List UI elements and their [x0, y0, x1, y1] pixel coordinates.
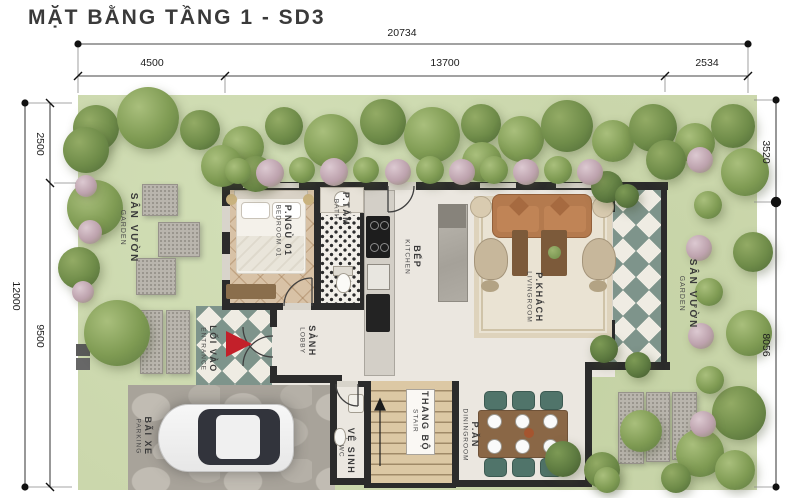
tree [625, 352, 651, 378]
label-dining: P.ĂNDININGROOM [460, 409, 480, 462]
page-title: MẶT BẰNG TẦNG 1 - SD3 [28, 6, 326, 30]
tree [180, 110, 220, 150]
tree [590, 335, 618, 363]
wc-sink [348, 394, 364, 413]
dining-chair [484, 458, 507, 477]
tree [715, 450, 755, 490]
stepping-stone [166, 310, 190, 374]
bedroom-side-window [222, 254, 230, 280]
flower-shrub [78, 220, 102, 244]
burner [370, 221, 379, 230]
dim-top-seg-3: 2534 [695, 57, 718, 69]
plate [543, 414, 558, 429]
bedside-lamp [303, 194, 314, 205]
armchair [582, 238, 616, 280]
tree [696, 366, 724, 394]
tree [615, 184, 639, 208]
car-roof [216, 415, 260, 459]
tree [117, 87, 179, 149]
flower-shrub [385, 159, 411, 185]
plate [515, 414, 530, 429]
dining-chair [540, 391, 563, 410]
flower-shrub [75, 175, 97, 197]
dining-chair [512, 458, 535, 477]
label-kitchen: BẾPKITCHEN [402, 239, 422, 275]
tree [712, 386, 766, 440]
stepping-stone [136, 258, 176, 295]
tree [545, 441, 581, 477]
label-wc: VỆ SINHWC [336, 428, 356, 475]
wall-bath-bottom [314, 303, 367, 310]
label-bedroom: P.NGỦ 01BEDROOM 01 [273, 205, 293, 258]
stepping-stone [142, 184, 178, 216]
wall-terrace-right [661, 182, 667, 370]
flower-shrub [449, 159, 475, 185]
flower-shrub [686, 235, 712, 261]
flower-shrub [256, 159, 284, 187]
tree [592, 120, 634, 162]
label-garden-right: SÂN VƯỜNGARDEN [677, 259, 699, 330]
tree [360, 99, 406, 145]
label-living: P.KHÁCHLIVINGROOM [524, 271, 544, 323]
toilet-bowl [336, 273, 351, 293]
dim-right-seg-2: 8056 [760, 333, 772, 356]
dining-chair [484, 391, 507, 410]
flower-shrub [690, 411, 716, 437]
dining-chair [512, 391, 535, 410]
island-top [438, 204, 466, 228]
label-garden-left: SÂN VƯỜNGARDEN [118, 193, 140, 264]
tree [63, 127, 109, 173]
bedroom-side-window [222, 206, 230, 232]
tree [289, 157, 315, 183]
burner [380, 221, 389, 230]
floor-terrace [610, 186, 664, 364]
bedside-lamp [226, 194, 237, 205]
utility-box [76, 358, 90, 370]
wall-wc-stair [364, 381, 371, 485]
blanket [237, 236, 304, 271]
flower-shrub [320, 158, 348, 186]
tree [416, 156, 444, 184]
tree [711, 104, 755, 148]
pillow [241, 202, 270, 219]
side-table [470, 196, 492, 218]
pouf [481, 280, 499, 292]
tree [695, 278, 723, 306]
tree [541, 100, 593, 152]
floor-lobby [270, 302, 365, 385]
tree [225, 158, 251, 184]
tree [480, 156, 508, 184]
tree [498, 116, 544, 162]
floor-plan-canvas: MẶT BẰNG TẦNG 1 - SD3 [0, 0, 800, 498]
tree [461, 104, 501, 144]
label-entrance: LỐI VÀOENTRANCE [198, 325, 218, 373]
bedroom-door-opening [283, 303, 311, 310]
dim-left-seg-1: 2500 [34, 132, 46, 155]
tree [265, 107, 303, 145]
wc-door-opening [337, 381, 358, 387]
plate [487, 414, 502, 429]
coffee-table [512, 230, 528, 276]
table-plant [548, 246, 561, 259]
kitchen-sink [367, 264, 390, 290]
flower-shrub [577, 159, 603, 185]
entrance-direction-arrow [226, 331, 252, 357]
flower-shrub [687, 147, 713, 173]
burner [380, 243, 389, 252]
flower-shrub [72, 281, 94, 303]
centerpiece [524, 428, 534, 438]
tree [646, 140, 686, 180]
wall-stair-bottom [364, 483, 456, 488]
label-parking: BÃI XEPARKING [133, 416, 153, 455]
label-bath: P.TẮMBATH [331, 192, 351, 226]
tree [353, 157, 379, 183]
dim-top-seg-1: 4500 [140, 57, 163, 69]
tree [620, 410, 662, 452]
bedroom-bench [226, 284, 276, 299]
wall-lobby-stub-top [270, 303, 277, 327]
dim-top-seg-2: 13700 [430, 57, 459, 69]
label-lobby: SẢNHLOBBY [297, 325, 317, 357]
pouf [589, 280, 607, 292]
dim-right-seg-1: 3520 [760, 140, 772, 163]
tree [694, 191, 722, 219]
living-window [480, 183, 516, 188]
tree [733, 232, 773, 272]
tree [661, 463, 691, 493]
burner [370, 243, 379, 252]
tree [594, 467, 620, 493]
wall-dining-bottom [452, 480, 592, 487]
tree [84, 300, 150, 366]
dim-top-total: 20734 [387, 27, 416, 39]
dim-left-seg-2: 9500 [34, 324, 46, 347]
oven [366, 294, 390, 332]
label-stair: THANG BỘSTAIR [410, 391, 430, 451]
tree [404, 107, 460, 163]
flower-shrub [513, 159, 539, 185]
armchair [474, 238, 508, 280]
tree [544, 156, 572, 184]
wall-stair-dining [452, 381, 459, 487]
stepping-stone [158, 222, 200, 257]
dim-left-total: 12000 [10, 281, 22, 310]
plate [487, 439, 502, 454]
plate [515, 439, 530, 454]
